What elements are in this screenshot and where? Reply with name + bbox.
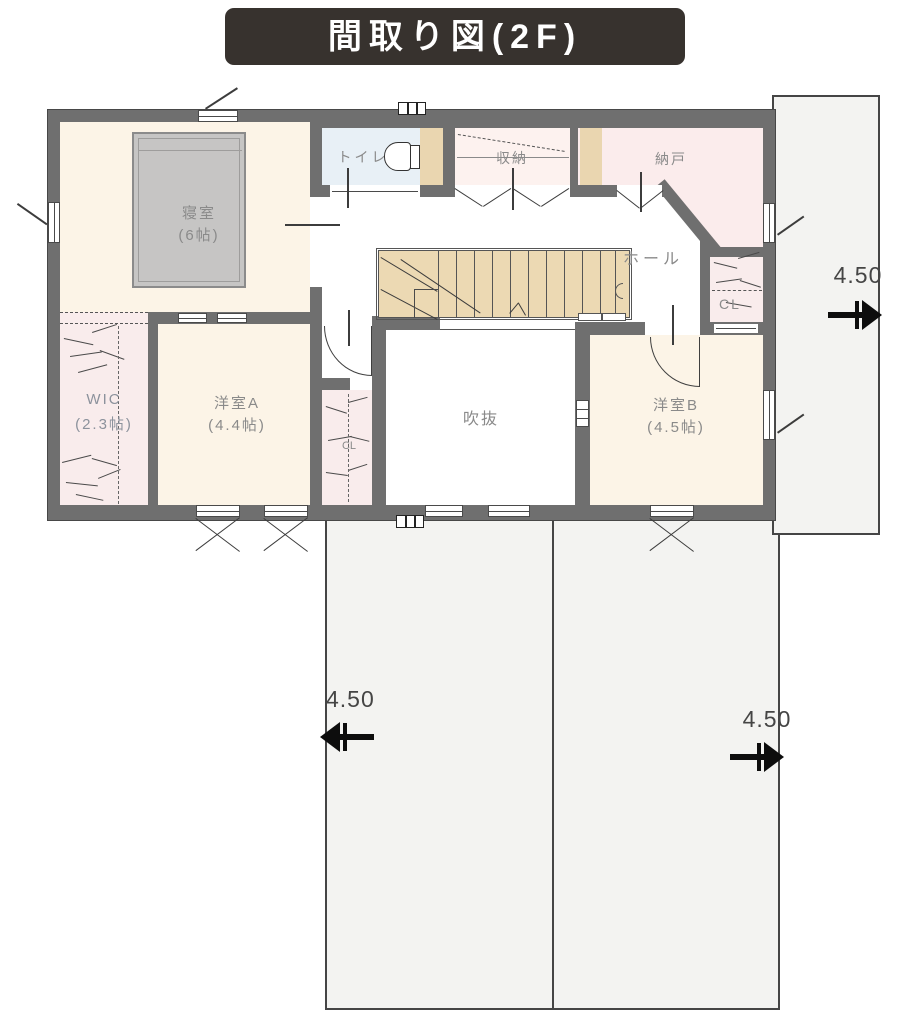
window-icon <box>488 505 530 517</box>
stairs-icon <box>378 250 630 318</box>
window-swing-mark-icon <box>17 203 47 225</box>
page-title: 間取り図(2F) <box>225 8 685 65</box>
room-size-wic: (2.3帖) <box>54 413 154 434</box>
closet-pole-line <box>712 290 762 291</box>
door-tick <box>285 224 340 226</box>
wall-toilet-storage <box>443 122 455 197</box>
window-icon <box>425 505 463 517</box>
room-size-bedroom: (6帖) <box>139 224 259 245</box>
room-label-void: 吹抜 <box>431 405 531 429</box>
dimension-arrow-right-icon <box>828 300 882 330</box>
cl-upper-door-opening <box>714 324 758 333</box>
room-label-toilet: トイレ <box>323 147 403 167</box>
dimension-label-bottom-left: 4.50 <box>326 686 375 713</box>
window-icon <box>763 203 775 243</box>
wall-cl-upper-top <box>700 247 775 257</box>
void-interior-window-icon <box>576 400 589 427</box>
window-icon <box>650 505 694 517</box>
stairs-handrail-icon <box>615 283 623 299</box>
wall-cl-upper-left <box>700 257 710 332</box>
room-label-cl-upper: CL <box>700 296 760 312</box>
transom-window-icon <box>178 313 207 323</box>
dimension-arrow-right-icon <box>730 742 784 772</box>
room-label-room-a: 洋室A <box>187 392 287 413</box>
wic-entry-opening <box>60 312 148 324</box>
transom-window-icon <box>217 313 247 323</box>
dimension-arrow-left-icon <box>320 722 374 752</box>
roof-divider-line <box>552 520 554 1008</box>
window-icon <box>264 505 308 517</box>
door-tick <box>347 168 349 208</box>
room-label-hall: ホール <box>608 245 698 269</box>
room-label-wic: WIC <box>54 391 154 408</box>
room-label-nando: 納戸 <box>623 149 719 169</box>
bedroom-door-opening <box>310 197 322 287</box>
floorplan-house: 寝室 (6帖) トイレ 収納 納戸 ホール CL WIC (2.3帖) 洋室A … <box>48 110 775 520</box>
wall-storage-nando <box>570 122 578 197</box>
wall-bedroom-hall <box>310 122 322 500</box>
nando-shelf <box>580 128 602 185</box>
window-icon <box>48 202 60 243</box>
window-icon <box>196 505 240 517</box>
room-size-room-a: (4.4帖) <box>187 414 287 435</box>
dimension-label-bottom-right: 4.50 <box>736 706 798 733</box>
window-icon <box>198 110 238 122</box>
wall-closet-a-stub <box>310 378 350 390</box>
room-label-storage: 収納 <box>464 148 560 168</box>
roof-area-bottom <box>325 518 780 1010</box>
room-label-bedroom: 寝室 <box>139 202 259 223</box>
dimension-label-right: 4.50 <box>822 262 894 289</box>
wall-void-left <box>372 322 386 505</box>
toilet-tank-icon <box>410 145 420 169</box>
floor-plan-page: 間取り図(2F) <box>0 0 915 1024</box>
room-label-room-b: 洋室B <box>626 394 726 415</box>
room-label-cl-a: CL <box>339 440 359 452</box>
room-size-room-b: (4.5帖) <box>626 416 726 437</box>
window-swing-mark-icon <box>205 87 238 109</box>
vent-icon <box>396 515 424 528</box>
toilet-door-opening <box>330 185 420 197</box>
vent-icon <box>398 102 426 115</box>
window-icon <box>763 390 775 440</box>
toilet-shelf <box>420 128 443 185</box>
